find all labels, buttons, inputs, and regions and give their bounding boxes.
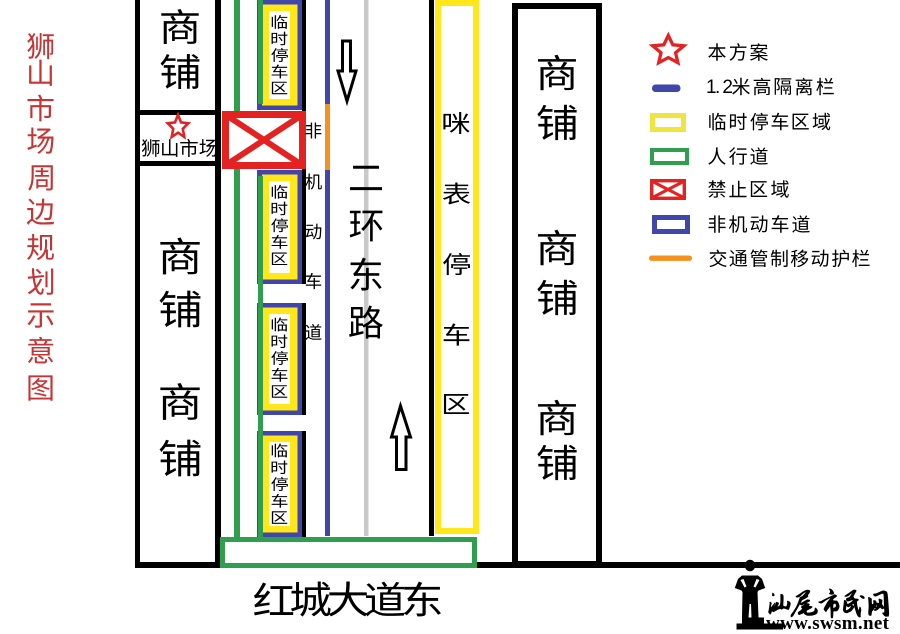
svg-text:www.swsm.net: www.swsm.net	[766, 613, 890, 634]
svg-text:1. 2: 1. 2	[706, 77, 733, 98]
